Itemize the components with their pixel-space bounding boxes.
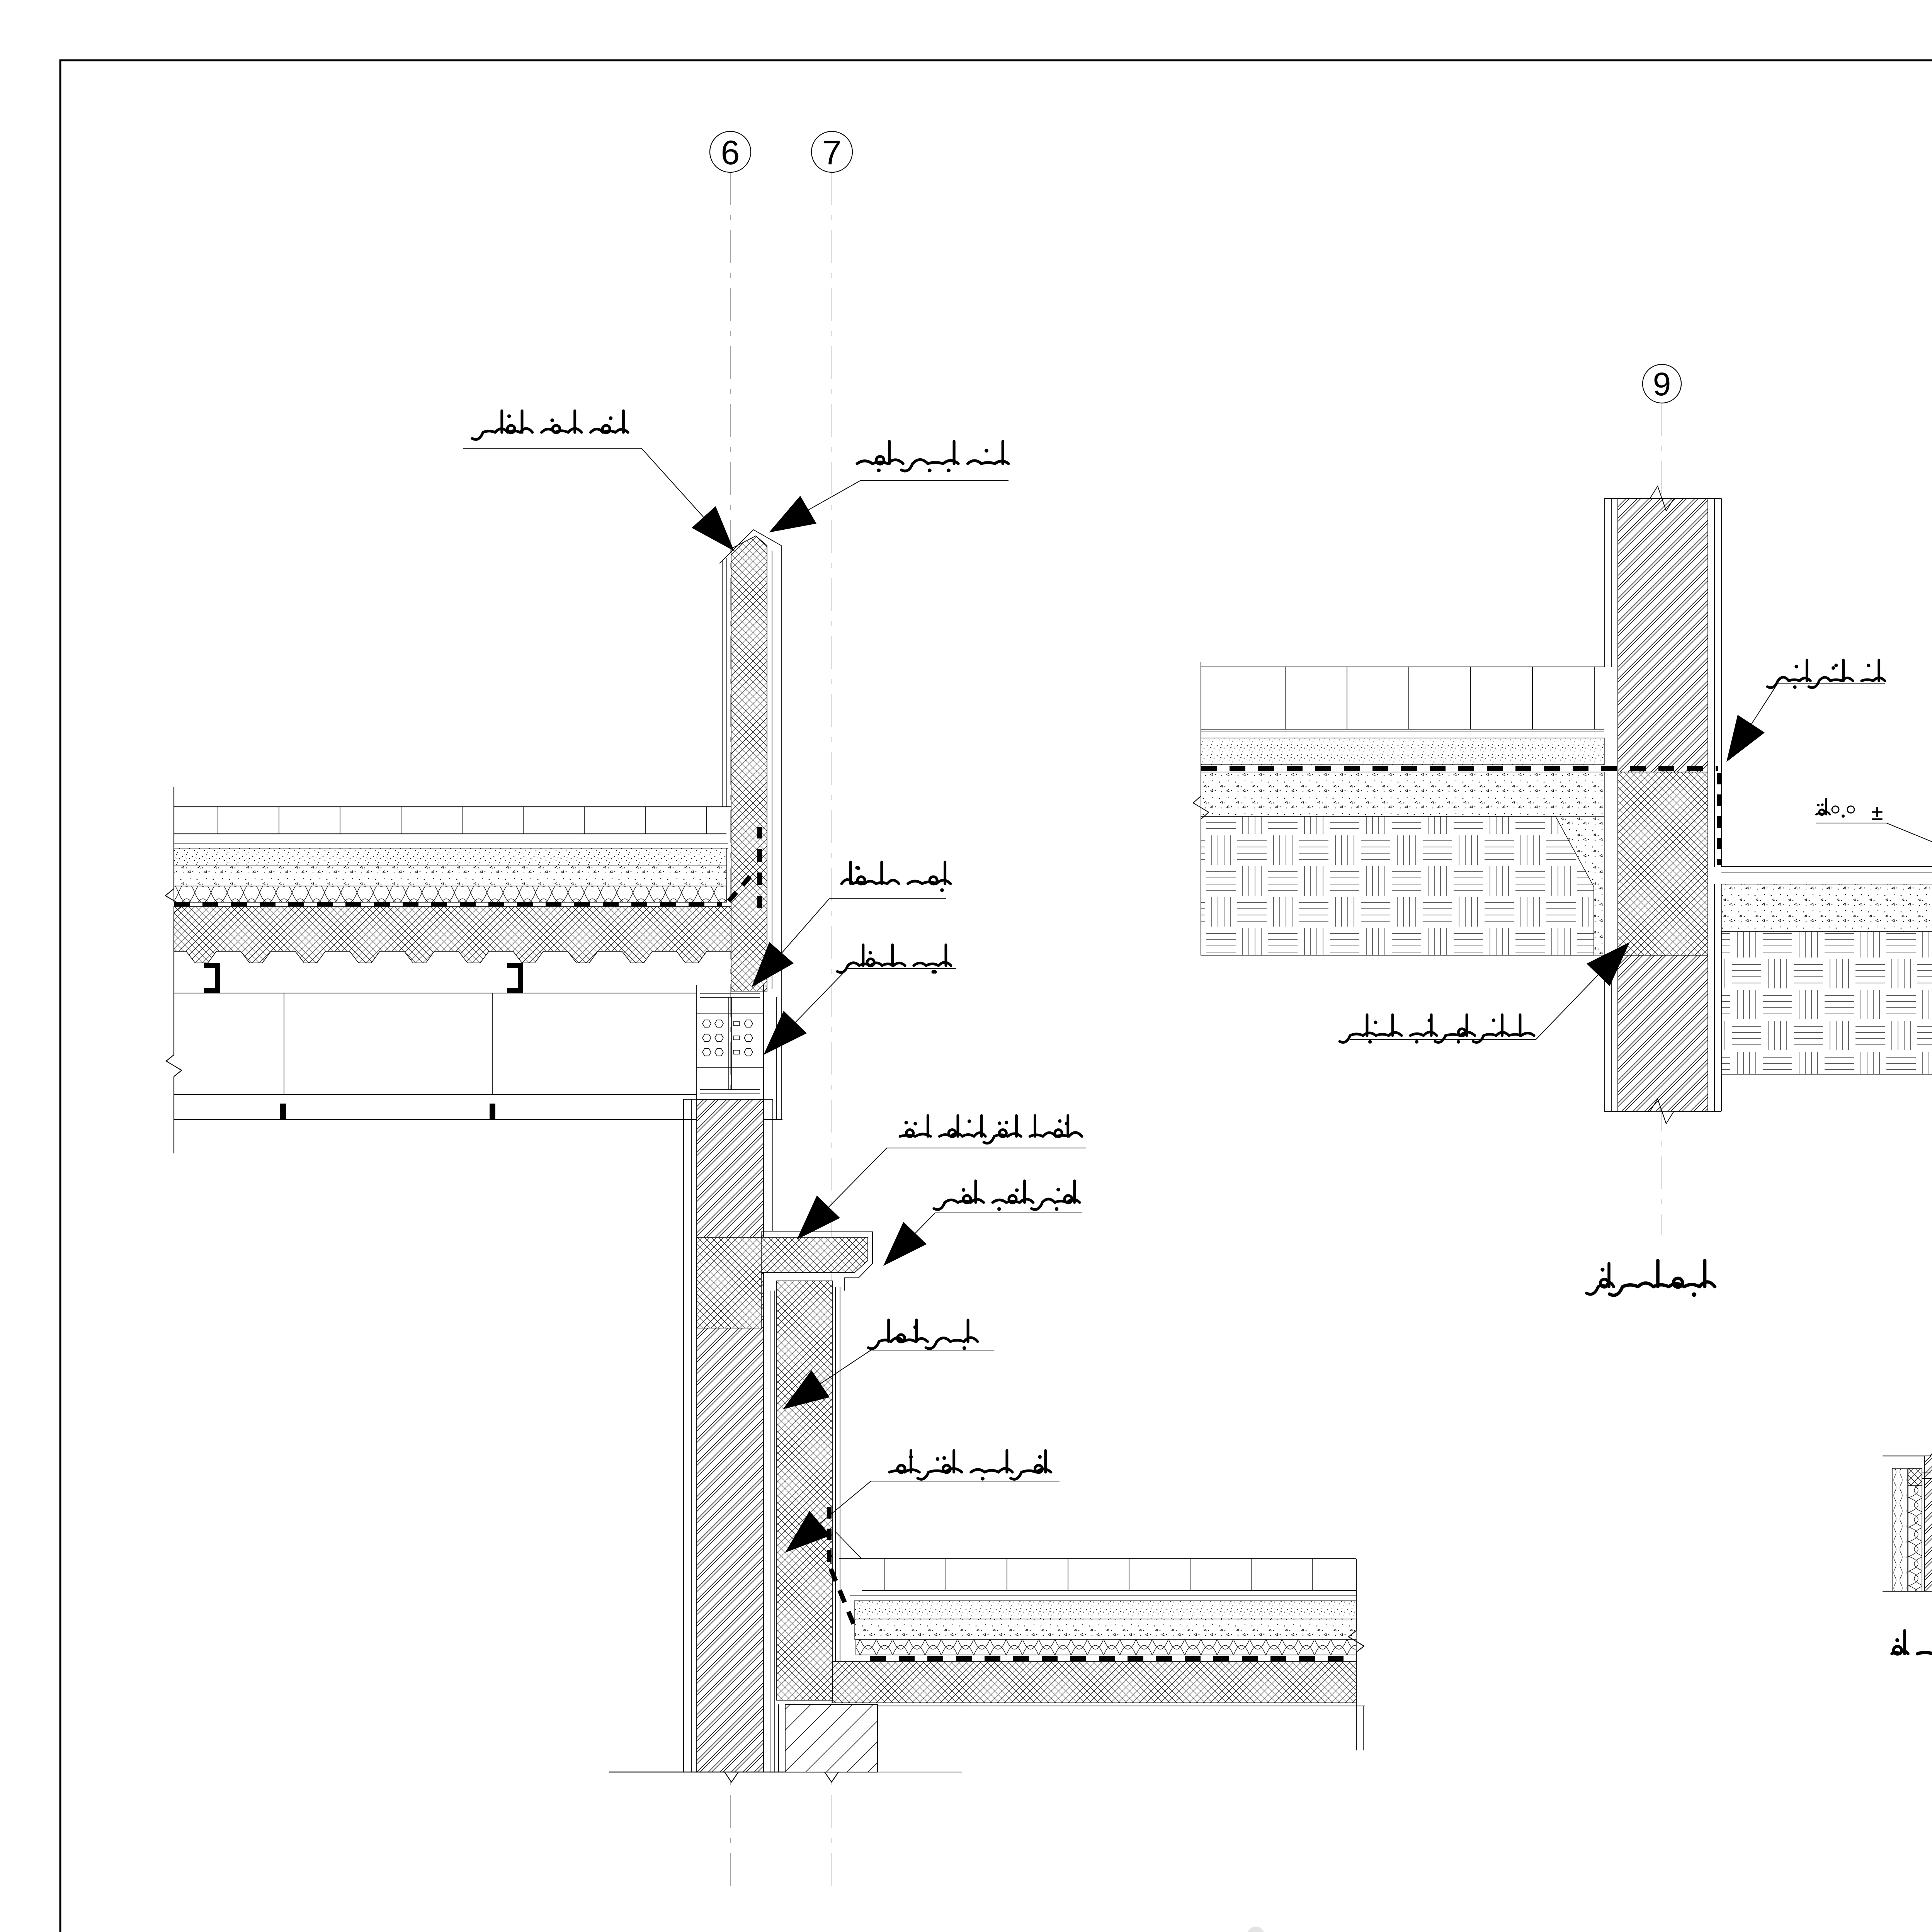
- svg-text:6: 6: [721, 133, 740, 172]
- svg-text:7: 7: [823, 133, 842, 172]
- svg-text:±: ±: [1871, 800, 1883, 825]
- svg-text:9: 9: [1653, 366, 1671, 402]
